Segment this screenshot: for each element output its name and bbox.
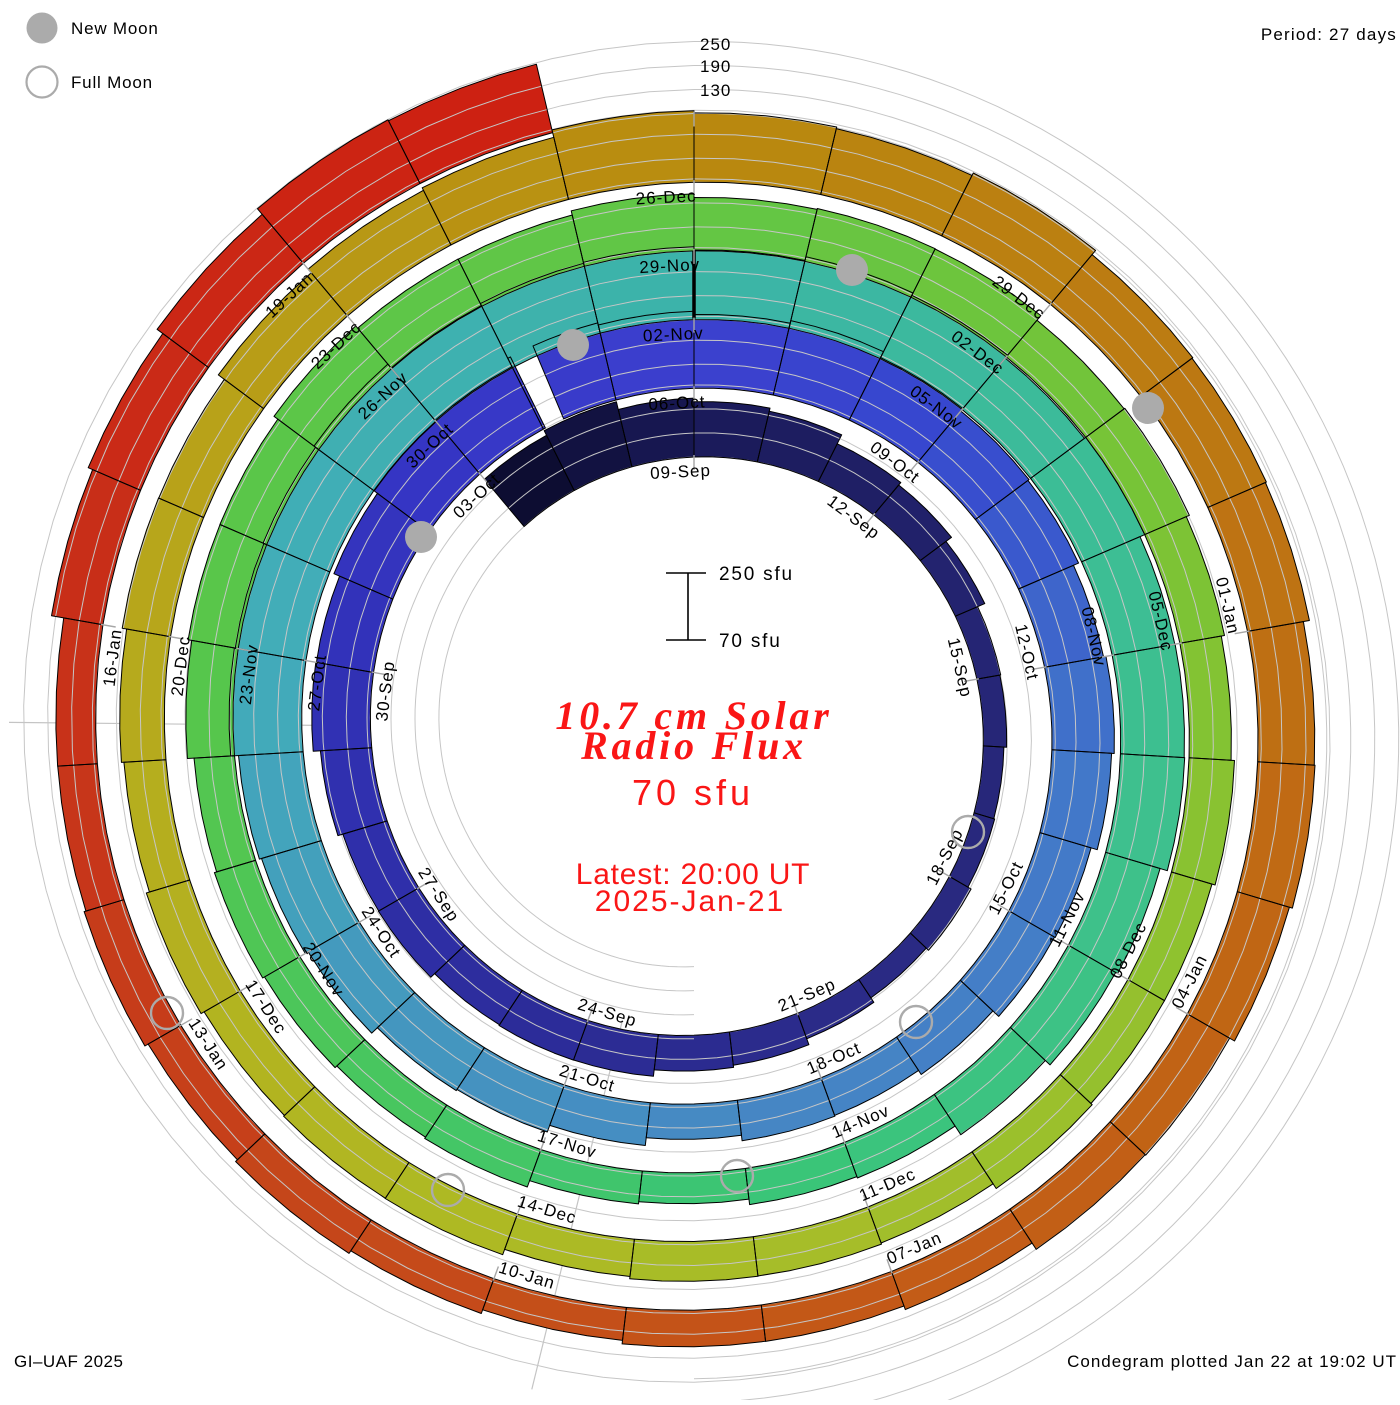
svg-text:Condegram plotted Jan 22 at 19: Condegram plotted Jan 22 at 19:02 UT [1067, 1352, 1397, 1371]
svg-text:New Moon: New Moon [71, 19, 159, 38]
svg-text:06-Oct: 06-Oct [648, 392, 706, 414]
svg-text:Full Moon: Full Moon [71, 73, 153, 92]
svg-text:29-Nov: 29-Nov [639, 255, 701, 277]
svg-text:02-Nov: 02-Nov [642, 324, 704, 346]
svg-text:250: 250 [700, 35, 731, 54]
svg-text:Radio Flux: Radio Flux [580, 723, 807, 768]
svg-text:70 sfu: 70 sfu [719, 631, 782, 652]
svg-text:26-Dec: 26-Dec [635, 186, 697, 208]
svg-text:70 sfu: 70 sfu [632, 772, 754, 813]
svg-text:Period: 27 days: Period: 27 days [1261, 25, 1397, 44]
svg-text:09-Sep: 09-Sep [650, 461, 712, 483]
svg-text:130: 130 [700, 81, 731, 100]
svg-text:250 sfu: 250 sfu [719, 564, 794, 585]
svg-text:GI–UAF 2025: GI–UAF 2025 [14, 1352, 123, 1371]
svg-text:2025-Jan-21: 2025-Jan-21 [595, 885, 785, 918]
svg-text:190: 190 [700, 57, 731, 76]
